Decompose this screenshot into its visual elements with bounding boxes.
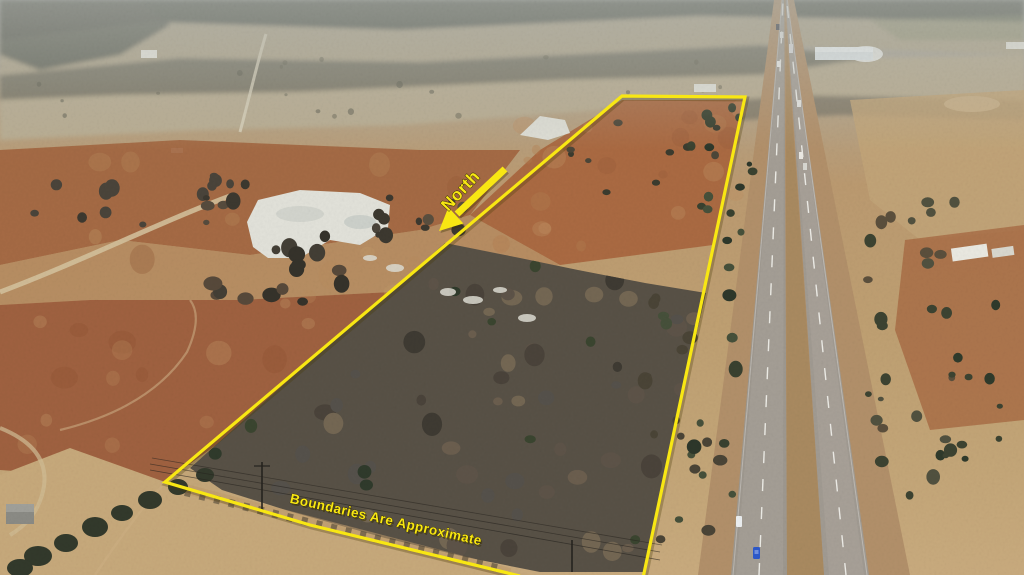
aerial-photo-canvas: North North Boundaries Are Approximate B… [0,0,1024,575]
photo-grain [0,0,1024,575]
aerial-photo: North North Boundaries Are Approximate B… [0,0,1024,575]
